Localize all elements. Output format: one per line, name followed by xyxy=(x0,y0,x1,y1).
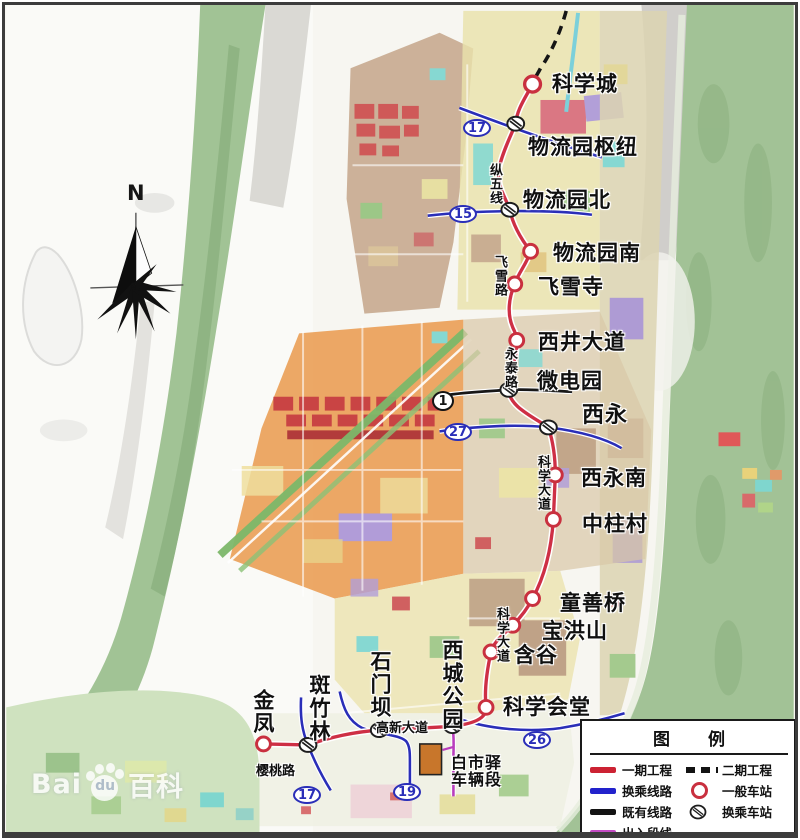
baidu-baike-watermark: Bai du 百科 xyxy=(31,763,184,805)
station-label-wuliuyuan-north: 物流园北 xyxy=(523,189,611,211)
station-label-jinfeng: 金凤 xyxy=(252,689,274,735)
compass-north-label: N xyxy=(127,181,145,205)
road-label-kexue-avenue-south: 科学大道 xyxy=(492,607,511,663)
legend-label-existing-line: 既有线路 xyxy=(622,802,686,821)
station-marker-kexuecheng xyxy=(525,76,541,92)
watermark-bai-text: Bai xyxy=(31,769,82,800)
station-label-wuliuyuan-hub: 物流园枢纽 xyxy=(528,136,638,158)
road-label-yingtaolu: 樱桃路 xyxy=(256,760,295,779)
legend-label-regular-station: 一般车站 xyxy=(722,781,792,800)
legend-swatch-transfer-line xyxy=(590,788,616,794)
legend-items: 一期工程 二期工程 换乘线路 一般车站 既有线路 换乘车站 出入段线 xyxy=(590,759,788,838)
legend-label-phase2: 二期工程 xyxy=(722,760,792,779)
station-marker-wuliuyuan-south xyxy=(524,244,538,258)
station-label-kexuehuitang: 科学会堂 xyxy=(503,696,591,718)
line-badge-15: 15 xyxy=(449,205,477,223)
line-badge-1: 1 xyxy=(432,391,454,411)
station-label-tongshanqiao: 童善桥 xyxy=(560,592,626,614)
legend-swatch-phase2-dashed xyxy=(686,767,718,773)
station-label-xiyong-south: 西永南 xyxy=(581,467,647,489)
line-badge-27: 27 xyxy=(444,423,472,441)
map-frame: N 科学城 物流园枢纽 物流园北 物流园南 飞雪寺 西井大道 微电园 西永 西永… xyxy=(2,2,798,838)
line-badge-17-north: 17 xyxy=(463,119,491,137)
legend-title: 图 例 xyxy=(590,723,788,755)
station-label-wuliuyuan-south: 物流园南 xyxy=(553,242,641,264)
baidu-paw-icon: du xyxy=(85,763,125,805)
legend-label-transfer-line: 换乘线路 xyxy=(622,781,686,800)
line-badge-19: 19 xyxy=(393,783,421,801)
road-label-gaoxin-avenue: 高新大道 xyxy=(376,717,428,736)
legend-title-char1: 图 xyxy=(653,725,670,750)
legend-swatch-phase1-line xyxy=(590,767,616,773)
legend-swatch-regular-station-icon xyxy=(691,782,708,799)
line-badge-26: 26 xyxy=(523,731,551,749)
station-marker-xijing-avenue xyxy=(510,333,524,347)
road-label-yongtailu: 永泰路 xyxy=(500,347,519,389)
station-label-feixuesi: 飞雪寺 xyxy=(538,276,604,298)
station-label-weidianyuan: 微电园 xyxy=(537,370,603,392)
station-marker-feixuesi xyxy=(508,277,522,291)
legend-label-phase1: 一期工程 xyxy=(622,760,686,779)
station-marker-kexuehuitang xyxy=(479,700,493,714)
road-label-feixuelu: 飞雪路 xyxy=(490,255,509,297)
legend-swatch-transfer-station-icon xyxy=(689,803,722,821)
legend-label-depot-entry: 出入段线 xyxy=(622,823,686,838)
screenshot-root: N 科学城 物流园枢纽 物流园北 物流园南 飞雪寺 西井大道 微电园 西永 西永… xyxy=(0,0,800,840)
watermark-baike-text: 百科 xyxy=(128,765,184,804)
station-marker-xiyong xyxy=(540,420,557,434)
depot-label-line2: 车辆段 xyxy=(451,771,502,788)
legend-swatch-depot-entry-line xyxy=(590,830,616,836)
gray-blob xyxy=(40,419,87,441)
legend-title-char2: 例 xyxy=(708,725,725,750)
southwest-green xyxy=(6,690,259,832)
road-label-kexue-avenue-north: 科学大道 xyxy=(533,455,552,511)
station-label-shimenba: 石门坝 xyxy=(369,650,391,719)
road-label-zongwuxian: 纵五线 xyxy=(485,163,504,205)
map-artwork xyxy=(5,5,795,832)
station-marker-tongshanqiao xyxy=(526,592,540,606)
station-label-xicheng-park: 西城公园 xyxy=(441,639,463,731)
line-badge-17-south: 17 xyxy=(293,786,321,804)
depot-area xyxy=(420,744,442,775)
depot-label: 白市驿 车辆段 xyxy=(451,754,502,788)
station-marker-wuliuyuan-hub xyxy=(507,117,524,131)
watermark-du-text: du xyxy=(95,778,115,794)
station-marker-jinfeng xyxy=(257,737,271,751)
legend-label-transfer-station: 换乘车站 xyxy=(722,802,792,821)
depot-label-line1: 白市驿 xyxy=(451,754,502,771)
station-label-kexuecheng: 科学城 xyxy=(552,73,618,95)
legend-box: 图 例 一期工程 二期工程 换乘线路 一般车站 既有线路 换乘车站 出入段线 xyxy=(580,719,796,835)
station-label-hangu: 含谷 xyxy=(514,644,558,666)
station-label-xiyong: 西永 xyxy=(582,404,628,427)
station-marker-zhongzhucun xyxy=(546,512,560,526)
station-label-xijing-avenue: 西井大道 xyxy=(538,331,626,353)
station-label-zhongzhucun: 中柱村 xyxy=(582,513,648,535)
station-label-banzhulin: 斑竹林 xyxy=(308,674,330,743)
legend-swatch-existing-line xyxy=(590,809,616,815)
station-label-baohongshan: 宝洪山 xyxy=(542,620,608,642)
